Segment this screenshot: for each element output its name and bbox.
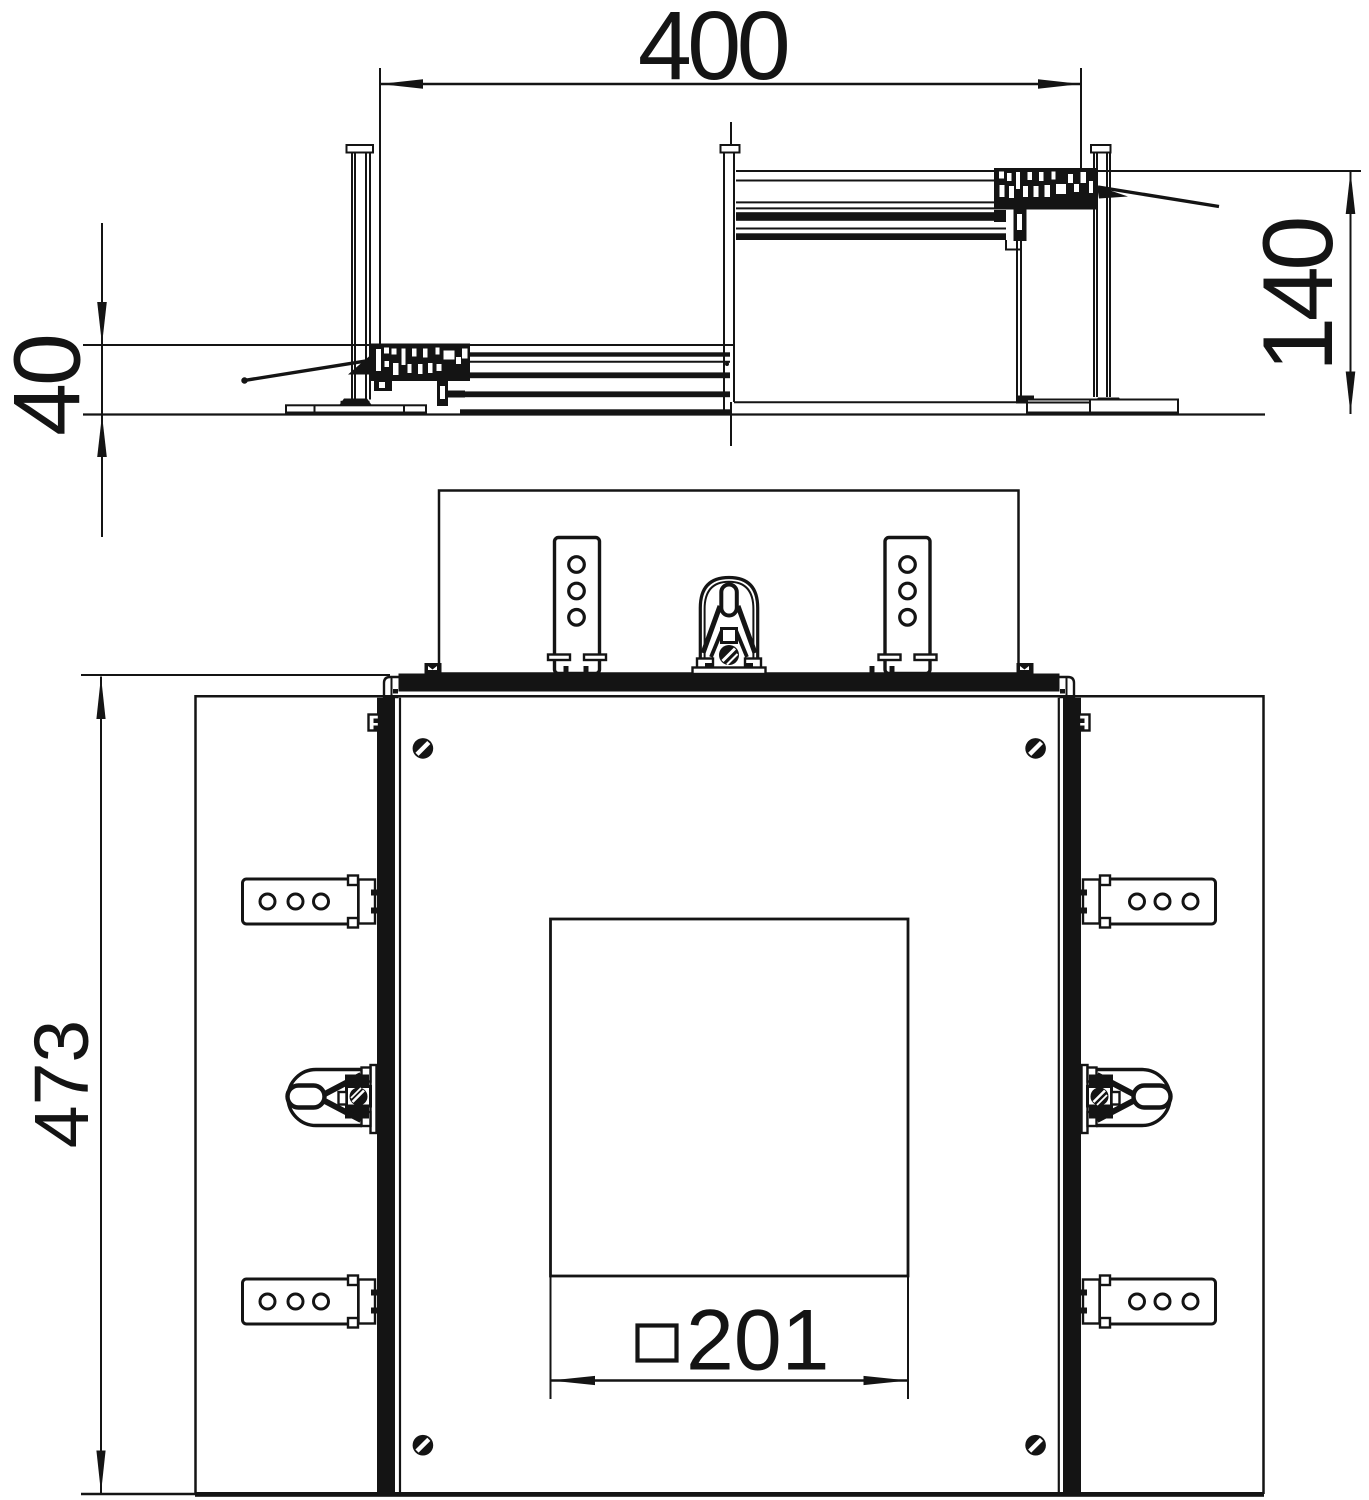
svg-text:201: 201 xyxy=(686,1293,830,1389)
svg-text:40: 40 xyxy=(0,336,101,436)
svg-text:140: 140 xyxy=(1242,219,1353,372)
svg-text:400: 400 xyxy=(638,0,788,100)
svg-text:473: 473 xyxy=(19,1020,105,1148)
